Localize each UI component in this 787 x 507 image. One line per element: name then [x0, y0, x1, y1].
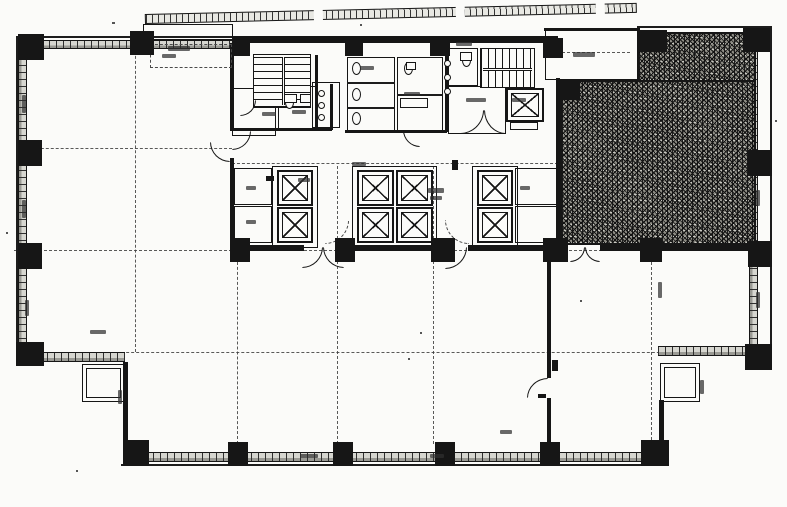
text-label-smudge	[404, 92, 420, 96]
door-swing	[323, 247, 344, 268]
text-label-smudge	[430, 196, 442, 200]
structural-column	[16, 342, 44, 366]
toilet-fixture	[352, 88, 361, 101]
text-label-smudge	[168, 46, 190, 51]
text-label-smudge	[22, 95, 26, 113]
structural-column	[18, 243, 42, 269]
counter-fixture	[284, 94, 297, 103]
outer-wall-line	[121, 464, 669, 466]
text-label-smudge	[500, 430, 512, 434]
window-band	[42, 40, 132, 49]
wall-segment	[600, 245, 756, 251]
room-outline	[312, 82, 340, 128]
stall-divider	[347, 107, 395, 109]
elevator-shaft	[477, 207, 513, 243]
text-label-smudge	[700, 380, 704, 394]
structural-column	[637, 30, 667, 52]
counter-fixture	[400, 98, 428, 108]
scan-speck	[700, 66, 702, 68]
door-swing	[570, 247, 585, 262]
door-swing	[302, 247, 323, 268]
wall-segment	[232, 36, 558, 43]
structural-column	[743, 28, 770, 52]
elevator-shaft	[396, 207, 433, 243]
text-label-smudge	[298, 178, 310, 182]
balcony-band-break	[596, 3, 605, 15]
structural-column	[543, 38, 563, 58]
fixture-circle	[444, 60, 451, 67]
room-outline	[143, 24, 233, 40]
text-label-smudge	[90, 330, 106, 334]
structural-column	[745, 344, 772, 370]
text-label-smudge	[162, 54, 176, 58]
text-label-smudge	[25, 300, 29, 316]
staircase	[480, 48, 535, 88]
floor-plan-canvas	[0, 0, 787, 507]
text-label-smudge	[573, 52, 595, 57]
grid-chain-line	[237, 252, 238, 444]
door-swing	[445, 247, 467, 269]
scan-speck	[580, 300, 582, 302]
room-inner-line	[86, 368, 121, 398]
counter-fixture	[406, 62, 416, 70]
text-label-smudge	[520, 186, 530, 190]
counter-fixture	[510, 122, 538, 130]
outer-wall-line	[770, 28, 772, 346]
structural-column	[640, 238, 662, 262]
elevator-x-mark	[482, 212, 508, 238]
grid-chain-line	[232, 163, 558, 164]
wall-segment	[547, 398, 551, 444]
text-label-smudge	[428, 188, 444, 193]
elevator-x-mark	[482, 175, 508, 201]
stair-rail	[483, 68, 532, 71]
door-stop-mark	[538, 394, 546, 398]
grid-chain-line	[26, 148, 232, 149]
room-inner-line	[664, 367, 696, 398]
counter-fixture	[300, 94, 311, 103]
elevator-x-mark	[362, 212, 389, 238]
door-swing	[585, 247, 600, 262]
door-swing	[232, 131, 251, 150]
elevator-shaft	[277, 170, 313, 206]
text-label-smudge	[456, 42, 472, 46]
elevator-shaft	[477, 170, 513, 206]
text-label-smudge	[430, 454, 444, 458]
structural-column	[230, 238, 250, 262]
elevator-x-mark	[362, 175, 389, 201]
scan-speck	[112, 22, 115, 24]
scan-speck	[6, 232, 8, 234]
structural-column	[345, 36, 363, 56]
elevator-shaft	[357, 170, 394, 206]
structural-column	[641, 440, 669, 466]
grid-chain-line	[135, 46, 136, 352]
grid-chain-line	[337, 166, 338, 444]
structural-column	[540, 442, 560, 466]
door-swing	[403, 130, 420, 147]
elevator-x-mark	[401, 212, 428, 238]
stall-divider	[347, 82, 395, 84]
elevator-shaft	[506, 88, 544, 122]
scan-speck	[76, 470, 78, 472]
window-band	[125, 452, 665, 462]
text-label-smudge	[756, 190, 760, 206]
text-label-smudge	[262, 112, 276, 116]
wall-segment	[547, 251, 551, 378]
door-swing	[210, 142, 230, 162]
outer-wall-line	[16, 36, 18, 346]
text-label-smudge	[300, 454, 318, 458]
door-stop-mark	[266, 176, 274, 181]
structural-column	[558, 80, 580, 100]
fixture-circle	[318, 90, 325, 97]
structural-column	[333, 442, 353, 466]
text-label-smudge	[658, 282, 662, 298]
text-label-smudge	[512, 98, 526, 102]
structural-column	[18, 140, 42, 166]
fixture-circle	[444, 74, 451, 81]
elevator-x-mark	[282, 212, 308, 238]
structural-column	[123, 440, 149, 466]
elevator-x-mark	[401, 175, 428, 201]
text-label-smudge	[246, 186, 256, 190]
structural-column	[130, 31, 154, 55]
door-stop-mark	[552, 360, 558, 371]
text-label-smudge	[466, 98, 486, 102]
balcony-band-break	[456, 6, 465, 18]
structural-column	[232, 36, 250, 56]
structural-column	[18, 34, 44, 60]
wall-segment	[659, 400, 664, 444]
elevator-shaft	[357, 207, 394, 243]
fixture-circle	[444, 88, 451, 95]
scan-speck	[408, 358, 410, 360]
window-band	[40, 352, 125, 362]
counter-fixture	[460, 52, 472, 61]
text-label-smudge	[22, 200, 26, 218]
fixture-circle	[318, 102, 325, 109]
scan-speck	[360, 24, 362, 26]
hatched-area	[560, 80, 756, 245]
structural-column	[748, 150, 772, 176]
scan-speck	[420, 332, 422, 334]
text-label-smudge	[118, 390, 122, 404]
balcony-band	[145, 3, 637, 24]
structural-column	[748, 241, 772, 267]
scan-speck	[775, 120, 777, 122]
text-label-smudge	[352, 162, 366, 166]
elevator-shaft	[277, 207, 313, 243]
balcony-band-break	[314, 9, 323, 21]
text-label-smudge	[246, 220, 256, 224]
structural-column	[430, 36, 450, 56]
door-stop-mark	[452, 160, 458, 170]
elevator-x-mark	[511, 93, 539, 117]
text-label-smudge	[292, 110, 306, 114]
structural-column	[543, 238, 568, 262]
fixture-circle	[318, 114, 325, 121]
window-band	[658, 346, 748, 356]
toilet-fixture	[352, 112, 361, 125]
text-label-smudge	[756, 292, 760, 308]
text-label-smudge	[360, 66, 374, 70]
structural-column	[228, 442, 248, 466]
